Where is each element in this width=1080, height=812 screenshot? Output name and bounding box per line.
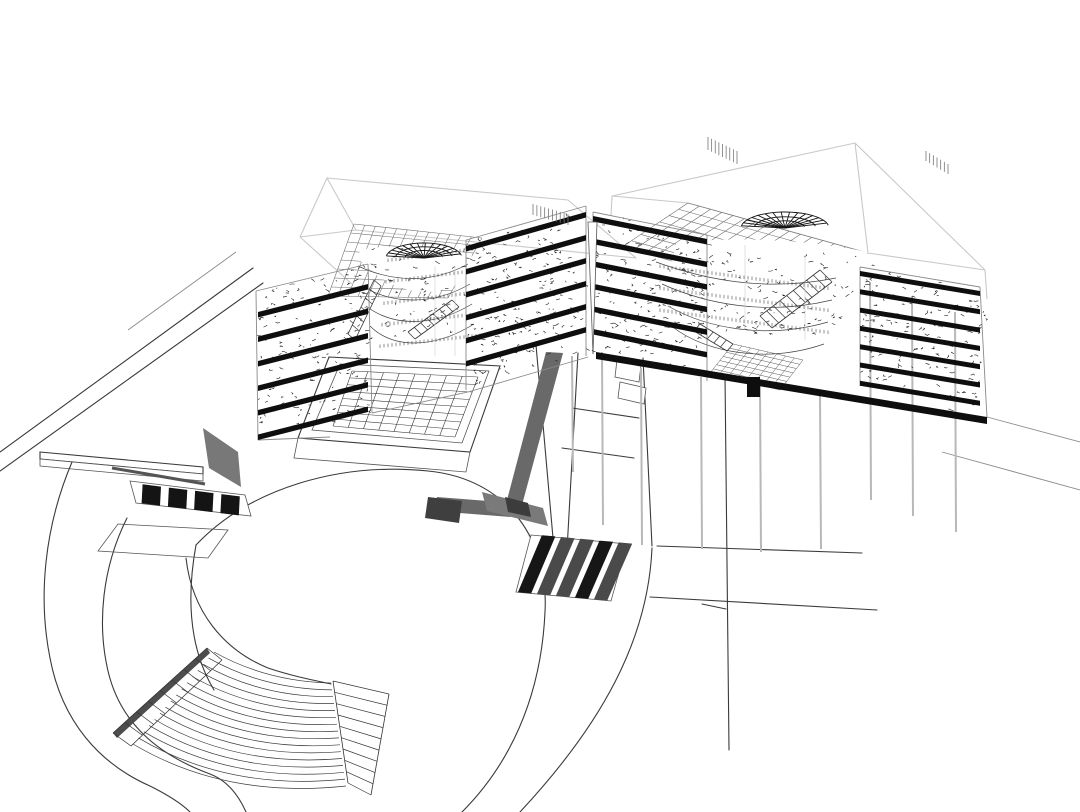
architectural-drawing [0,0,1080,812]
crosswalk-stripe [220,494,239,515]
crosswalk-stripe [194,491,213,512]
pilotis-column [701,377,702,549]
pilotis-column [572,356,573,472]
pilotis-column [820,395,821,549]
pilotis-column [602,352,603,525]
axonometric-view [0,0,1080,812]
crosswalk-stripe [142,484,161,505]
crosswalk-stripe [168,488,187,509]
pilotis-column [641,368,642,545]
section-cut-column [747,377,760,397]
pilotis-column [870,282,871,500]
scribble [467,258,470,259]
pilotis-column [760,386,761,552]
